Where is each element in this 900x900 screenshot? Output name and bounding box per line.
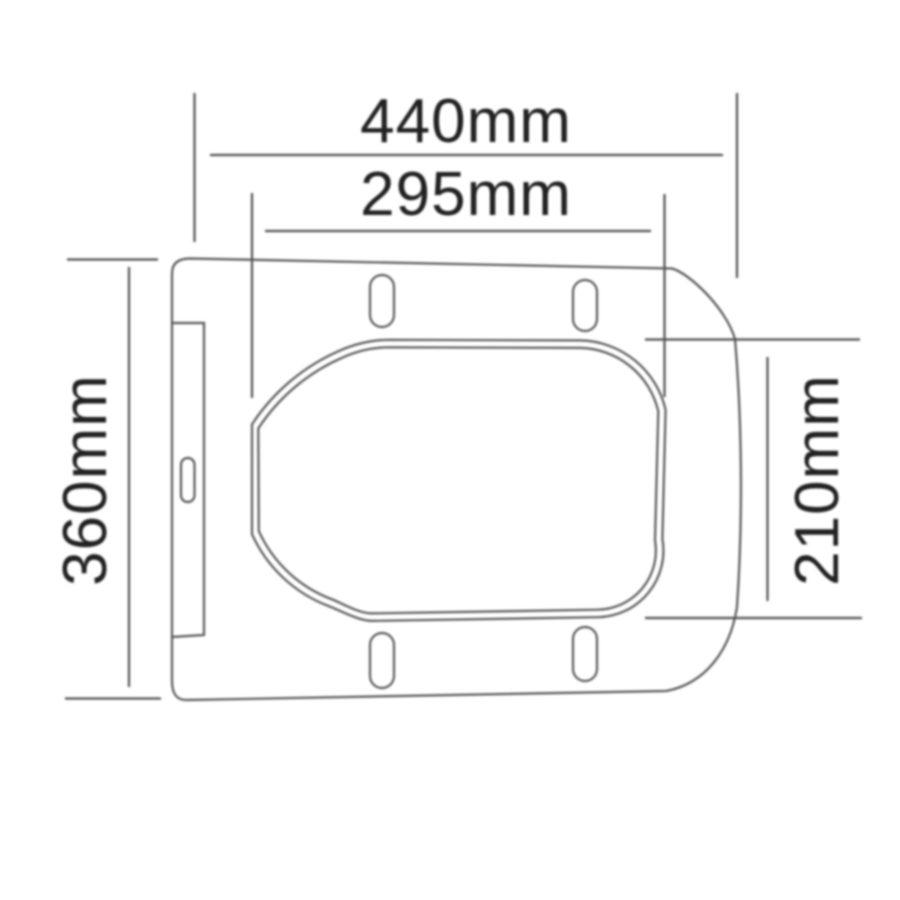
svg-text:440mm: 440mm [360, 87, 572, 156]
svg-text:360mm: 360mm [51, 374, 120, 586]
svg-text:210mm: 210mm [783, 374, 852, 586]
svg-text:295mm: 295mm [360, 160, 572, 229]
